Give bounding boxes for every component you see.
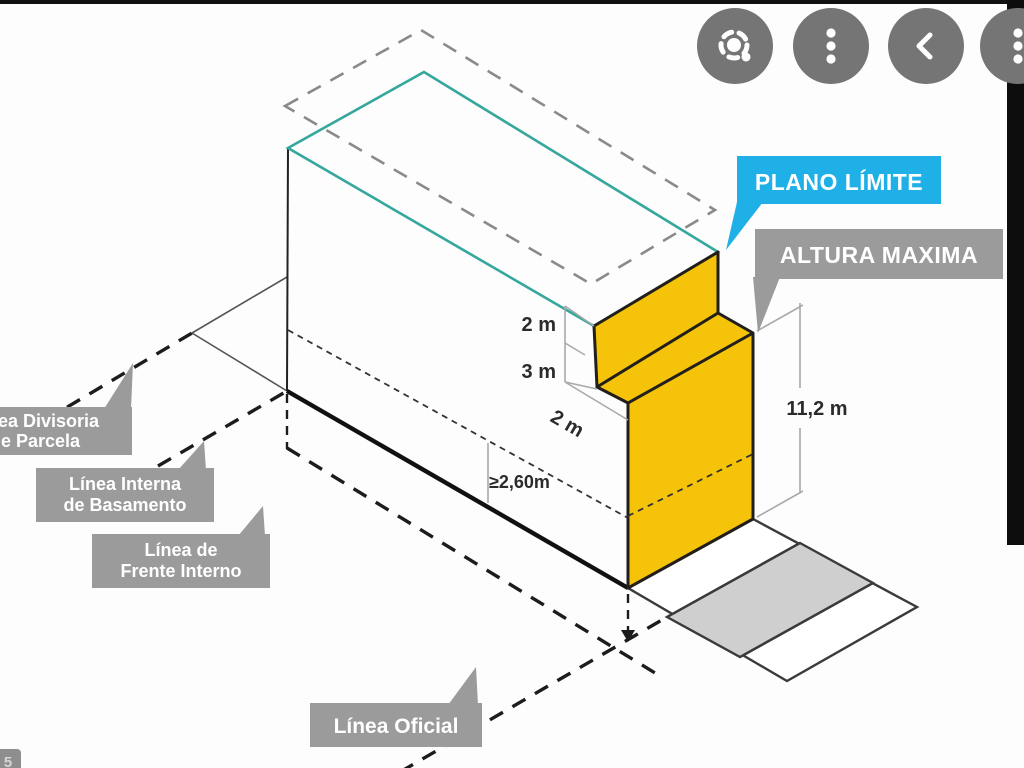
- linea-frente-interno-line: [287, 448, 660, 676]
- linea-interna-label-1: Línea Interna: [69, 474, 182, 494]
- dim-step-top: 2 m: [522, 314, 556, 336]
- altura-maxima-label: ALTURA MAXIMA: [780, 242, 978, 268]
- top-black-bar: [0, 0, 1024, 4]
- chevron-left-icon: [904, 24, 948, 68]
- dim-step-mid: 3 m: [522, 361, 556, 383]
- linea-divisoria-tail: [104, 363, 133, 409]
- linea-divisoria-label-2: de Parcela: [0, 431, 81, 451]
- height-dim-tick-bottom: [757, 491, 803, 517]
- plano-limite-label: PLANO LÍMITE: [755, 168, 923, 195]
- linea-interna-label-2: de Basamento: [63, 495, 186, 515]
- kebab-menu-icon: [996, 24, 1024, 68]
- linea-frente-tail: [238, 506, 265, 536]
- step-dim-tick-mid: [565, 343, 585, 355]
- linea-oficial-tail: [448, 667, 478, 705]
- building-left-edge: [287, 148, 288, 391]
- plano-limite-plane: [288, 72, 718, 326]
- zoning-diagram: 2 m 3 m 2 m ≥2,60m 11,2 m PLANO LÍMITE A…: [0, 0, 1024, 768]
- image-viewer-canvas: 2 m 3 m 2 m ≥2,60m 11,2 m PLANO LÍMITE A…: [0, 0, 1024, 768]
- callout-linea-oficial: Línea Oficial: [310, 667, 482, 747]
- linea-frente-label-2: Frente Interno: [120, 561, 241, 581]
- linea-frente-label-1: Línea de: [144, 540, 217, 560]
- linea-divisoria-label-1: Línea Divisoria: [0, 411, 100, 431]
- lot-ground-lines: [192, 277, 287, 391]
- dashed-plane-outline: [285, 30, 715, 284]
- back-button[interactable]: [888, 8, 964, 84]
- dim-clearance: ≥2,60m: [489, 472, 550, 492]
- callout-linea-divisoria: Línea Divisoria de Parcela: [0, 363, 133, 455]
- kebab-menu-icon: [809, 24, 853, 68]
- page-number-badge[interactable]: 5: [0, 749, 21, 768]
- dim-step-run: 2 m: [547, 406, 588, 442]
- lot-back-line: [192, 277, 287, 333]
- step-dim-tick-top: [565, 306, 594, 326]
- dashed-limit-plane: [285, 30, 715, 284]
- linea-basamento-line: [158, 391, 287, 466]
- callout-altura-maxima: ALTURA MAXIMA: [753, 229, 1003, 333]
- linea-oficial-label: Línea Oficial: [334, 715, 459, 738]
- lens-search-button[interactable]: [697, 8, 773, 84]
- lens-icon: [713, 24, 757, 68]
- more-options-button[interactable]: [793, 8, 869, 84]
- altura-maxima-tail: [753, 277, 780, 333]
- lot-side-line: [192, 333, 287, 391]
- dim-total-height: 11,2 m: [786, 398, 847, 420]
